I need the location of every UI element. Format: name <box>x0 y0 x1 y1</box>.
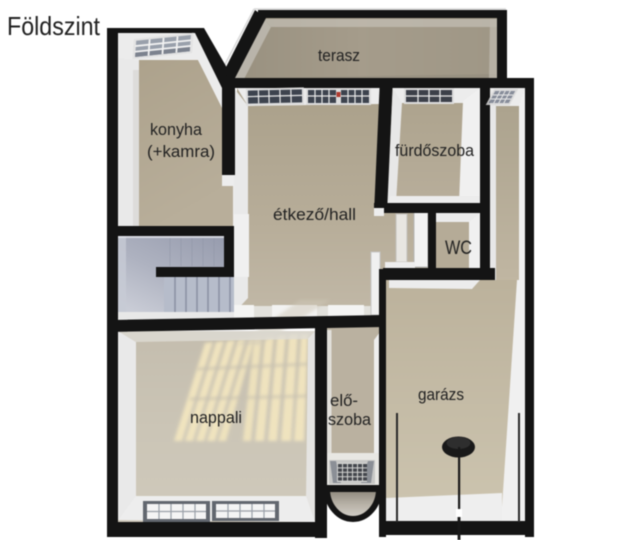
svg-text:garázs: garázs <box>418 385 464 404</box>
svg-text:terasz: terasz <box>318 46 360 65</box>
svg-text:konyha: konyha <box>150 120 203 139</box>
svg-text:Földszint: Földszint <box>7 11 101 41</box>
svg-text:(+kamra): (+kamra) <box>147 142 215 161</box>
svg-text:fürdőszoba: fürdőszoba <box>395 141 474 160</box>
svg-text:elő-: elő- <box>330 391 358 410</box>
svg-text:szoba: szoba <box>328 410 372 429</box>
svg-text:WC: WC <box>445 238 472 259</box>
svg-text:étkező/hall: étkező/hall <box>273 205 356 224</box>
svg-text:nappali: nappali <box>190 408 242 427</box>
